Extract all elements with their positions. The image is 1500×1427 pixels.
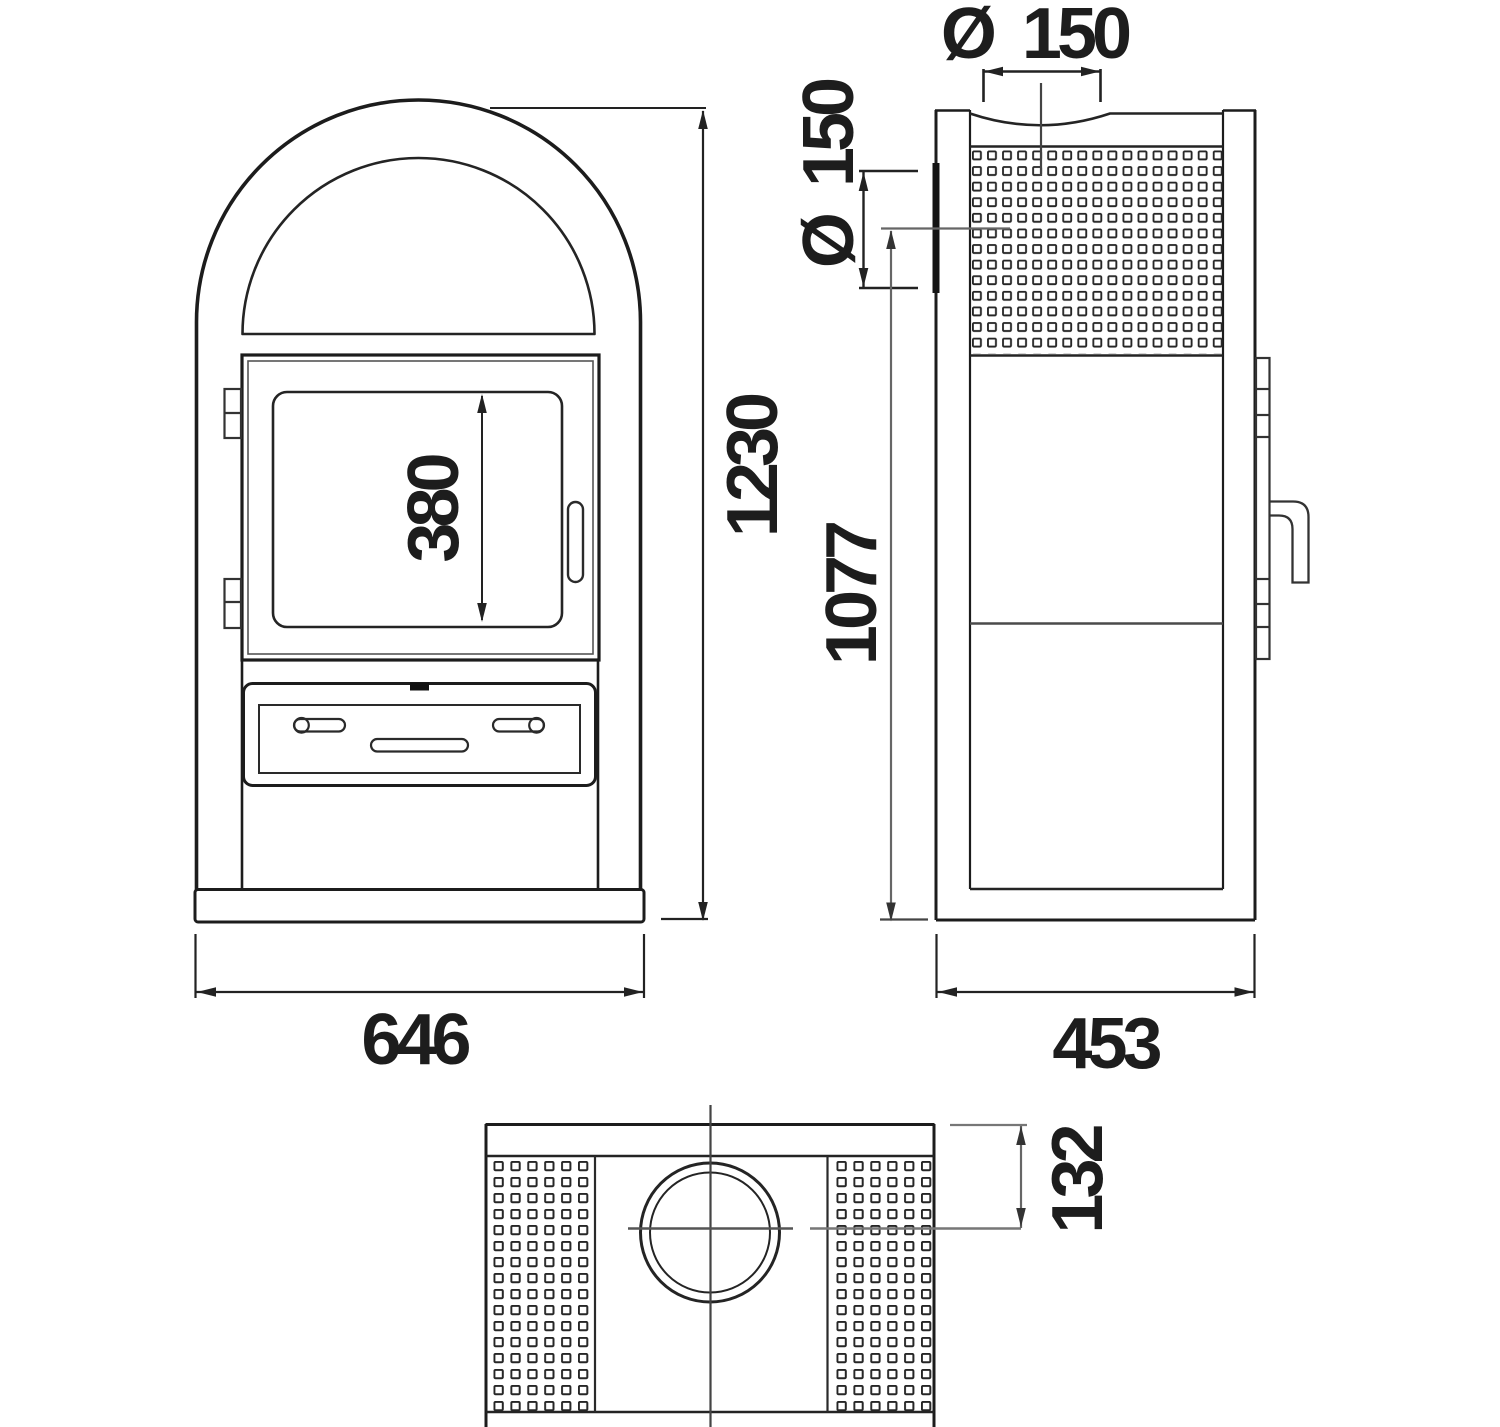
svg-text:1230: 1230 [713, 394, 793, 537]
svg-text:Ø 150: Ø 150 [941, 0, 1130, 74]
svg-text:453: 453 [1052, 1004, 1160, 1084]
svg-text:380: 380 [394, 454, 474, 562]
svg-text:646: 646 [361, 1000, 469, 1080]
svg-text:1077: 1077 [812, 523, 892, 665]
svg-text:132: 132 [1038, 1125, 1118, 1233]
svg-text:Ø 150: Ø 150 [789, 79, 869, 268]
